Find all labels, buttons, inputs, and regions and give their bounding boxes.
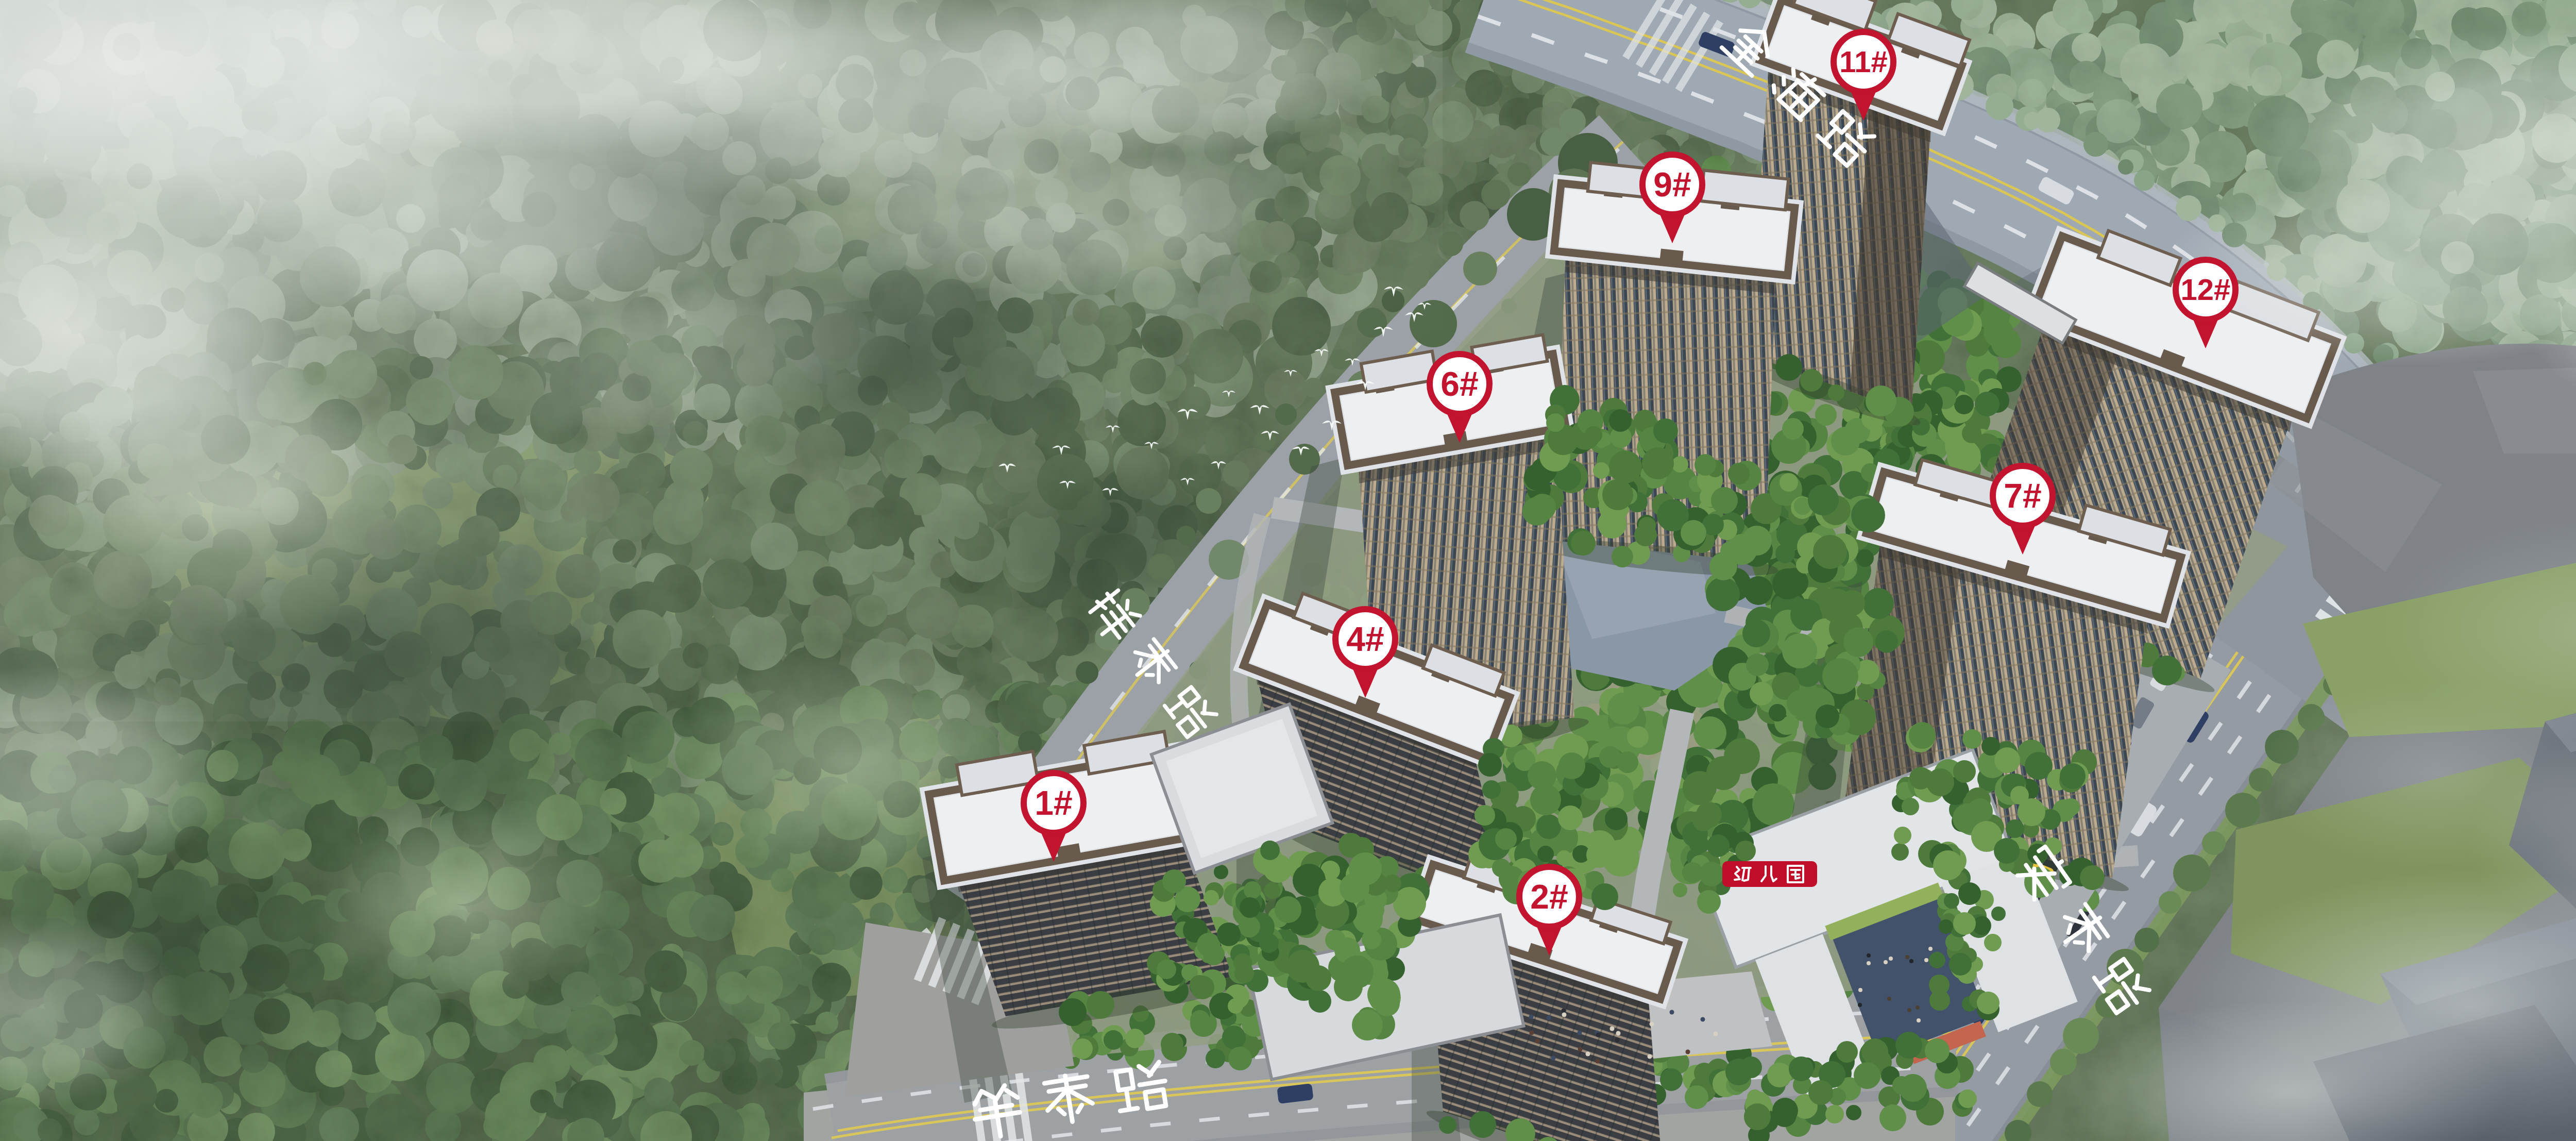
svg-text:7#: 7# [2004, 477, 2041, 515]
svg-text:4#: 4# [1346, 620, 1384, 658]
svg-text:12#: 12# [2181, 273, 2231, 306]
svg-text:2#: 2# [1530, 878, 1568, 916]
svg-text:9#: 9# [1653, 165, 1691, 204]
svg-text:1#: 1# [1035, 784, 1072, 822]
svg-text:11#: 11# [1839, 45, 1888, 78]
svg-text:6#: 6# [1440, 365, 1478, 403]
